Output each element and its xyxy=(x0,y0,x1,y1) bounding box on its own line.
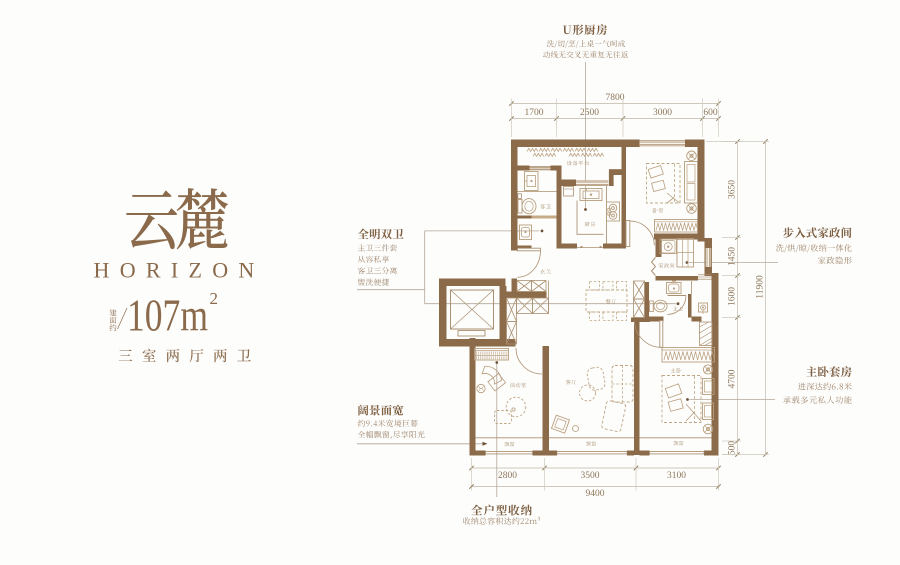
svg-text:HORIZON: HORIZON xyxy=(94,258,265,283)
svg-text:3100: 3100 xyxy=(667,471,686,481)
svg-text:1450: 1450 xyxy=(728,247,738,266)
svg-text:600: 600 xyxy=(703,108,718,118)
svg-text:11900: 11900 xyxy=(756,275,766,299)
svg-text:2500: 2500 xyxy=(580,108,599,118)
svg-text:500: 500 xyxy=(728,441,738,456)
svg-text:1700: 1700 xyxy=(525,108,544,118)
svg-text:4700: 4700 xyxy=(728,369,738,388)
svg-text:1600: 1600 xyxy=(728,287,738,306)
svg-text:2: 2 xyxy=(210,289,219,308)
svg-text:3500: 3500 xyxy=(581,471,600,481)
svg-text:2800: 2800 xyxy=(498,471,517,481)
svg-text:107m: 107m xyxy=(127,290,208,341)
svg-text:7800: 7800 xyxy=(606,93,625,103)
svg-text:3650: 3650 xyxy=(728,180,738,199)
svg-text:9400: 9400 xyxy=(586,489,605,499)
svg-text:3000: 3000 xyxy=(653,108,672,118)
